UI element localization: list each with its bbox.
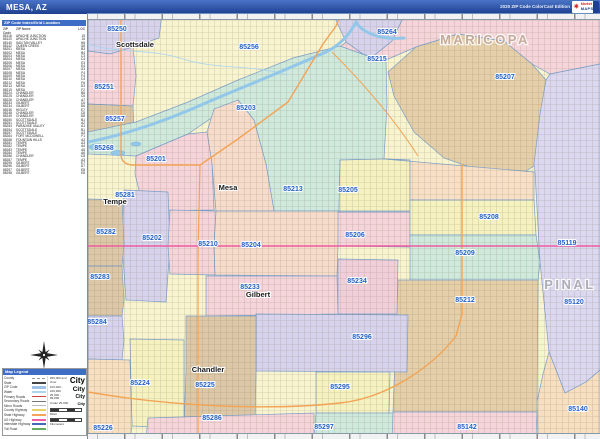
street-texture: [88, 14, 600, 439]
page-title: MESA, AZ: [6, 3, 47, 12]
legend-swatch: [32, 428, 46, 430]
zip-label-85286: 85286: [202, 415, 222, 422]
city-size-sample: City: [73, 386, 85, 393]
legend-swatch: [32, 396, 46, 398]
legend-swatch: [32, 423, 46, 425]
zip-label-85297: 85297: [314, 424, 334, 431]
legend-swatch: [32, 378, 46, 379]
legend-city-size: 250,000 and Over City: [50, 376, 85, 385]
zip-label-85212: 85212: [455, 297, 475, 304]
logo-star-icon: ✷: [573, 3, 580, 11]
legend-city-sizes: 250,000 and Over City 100,000 - 249,999 …: [47, 376, 85, 431]
zip-code-cell: 85298: [3, 172, 16, 175]
legend-swatch: [32, 419, 46, 421]
legend-item-toll-road: Toll Road: [4, 427, 47, 432]
zip-label-85296: 85296: [352, 334, 372, 341]
zip-label-85251: 85251: [94, 84, 114, 91]
city-label-mesa: Mesa: [219, 183, 239, 192]
zip-label-85140: 85140: [568, 406, 588, 413]
zip-label-85142: 85142: [457, 424, 477, 431]
zip-label-85207: 85207: [495, 74, 515, 81]
county-label-pinal: PINAL: [544, 277, 596, 292]
legend-scale-bar: Kilometers: [50, 418, 85, 427]
zip-label-85204: 85204: [241, 242, 261, 249]
zip-label-85210: 85210: [198, 241, 218, 248]
zip-label-85257: 85257: [105, 116, 125, 123]
map-poster: MESA, AZ 2020 ZIP Code ColorCast Edition…: [0, 0, 600, 439]
city-label-tempe: Tempe: [103, 197, 127, 206]
legend-scale-bar: Miles: [50, 408, 85, 417]
zip-label-85234: 85234: [347, 278, 367, 285]
legend-swatch: [32, 391, 46, 394]
legend-swatch: [32, 405, 46, 406]
zip-name-cell: GILBERT: [16, 172, 77, 175]
logo-corner-box: [593, 1, 599, 13]
zip-index-title: ZIP Code Index/Grid Location: [2, 20, 86, 26]
zip-label-85283: 85283: [90, 274, 110, 281]
legend-swatch: [32, 382, 46, 384]
city-size-sample: City: [70, 376, 85, 385]
legend-swatch: [32, 401, 46, 402]
map-grid-ruler-bottom: [88, 433, 600, 439]
city-size-sample: City: [77, 401, 85, 406]
zip-label-85202: 85202: [142, 235, 162, 242]
zip-label-85224: 85224: [130, 380, 150, 387]
zip-label-85264: 85264: [377, 29, 397, 36]
city-size-sample: City: [76, 394, 85, 400]
sidebar: ZIP Code Index/Grid Location ZIP Code ZI…: [0, 14, 88, 439]
legend-swatch: [32, 409, 46, 411]
zip-label-85119: 85119: [557, 240, 576, 247]
zip-label-85205: 85205: [338, 187, 358, 194]
legend-line-items: County State ZIP Code Water Primary Road…: [4, 376, 47, 431]
zip-loc-cell: E8: [77, 172, 85, 175]
zip-label-85226: 85226: [93, 425, 113, 432]
zip-label-85213: 85213: [283, 186, 303, 193]
legend-city-size: Under 25,000 City: [50, 401, 85, 406]
zip-map-svg: MARICOPAPINAL852508525685264852158520785…: [88, 14, 600, 439]
zip-table-row: 85298 GILBERT E8: [1, 172, 87, 175]
publisher-logo: ✷ Market MAPS: [572, 1, 599, 13]
zip-label-85208: 85208: [479, 214, 499, 221]
zip-label-85206: 85206: [345, 232, 365, 239]
zip-label-85268: 85268: [94, 145, 114, 152]
legend-swatch: [32, 414, 46, 416]
zip-label-85120: 85120: [564, 299, 584, 306]
zip-label-85215: 85215: [367, 56, 387, 63]
legend-city-size: 100,000 - 249,999 City: [50, 386, 85, 393]
map-legend: Map Legend County State ZIP Code Water P…: [2, 368, 87, 436]
zip-label-85256: 85256: [239, 44, 259, 51]
zip-label-85295: 85295: [330, 384, 350, 391]
zip-label-85282: 85282: [96, 229, 116, 236]
zip-label-85203: 85203: [236, 105, 256, 112]
zip-label-85250: 85250: [107, 26, 127, 33]
edition-label: 2020 ZIP Code ColorCast Edition: [500, 4, 570, 9]
map-canvas: MARICOPAPINAL852508525685264852158520785…: [88, 14, 600, 439]
title-bar: MESA, AZ 2020 ZIP Code ColorCast Edition…: [0, 0, 600, 14]
city-label-gilbert: Gilbert: [246, 290, 271, 299]
zip-label-85209: 85209: [455, 250, 475, 257]
legend-city-size: 25,000 - 99,999 City: [50, 394, 85, 400]
zip-index-table: 85118 APACHE JUNCTION J5 85120 APACHE JU…: [0, 35, 88, 175]
zip-label-85225: 85225: [195, 382, 215, 389]
county-label-maricopa: MARICOPA: [440, 32, 530, 47]
city-label-scottsdale: Scottsdale: [116, 40, 154, 49]
lake: [131, 142, 141, 146]
zip-label-85201: 85201: [146, 156, 166, 163]
map-grid-ruler-top: [88, 14, 600, 20]
logo-word-2: MAPS: [581, 7, 594, 11]
city-label-chandler: Chandler: [192, 365, 225, 374]
zip-label-85284: 85284: [88, 319, 107, 326]
legend-swatch: [32, 386, 46, 389]
